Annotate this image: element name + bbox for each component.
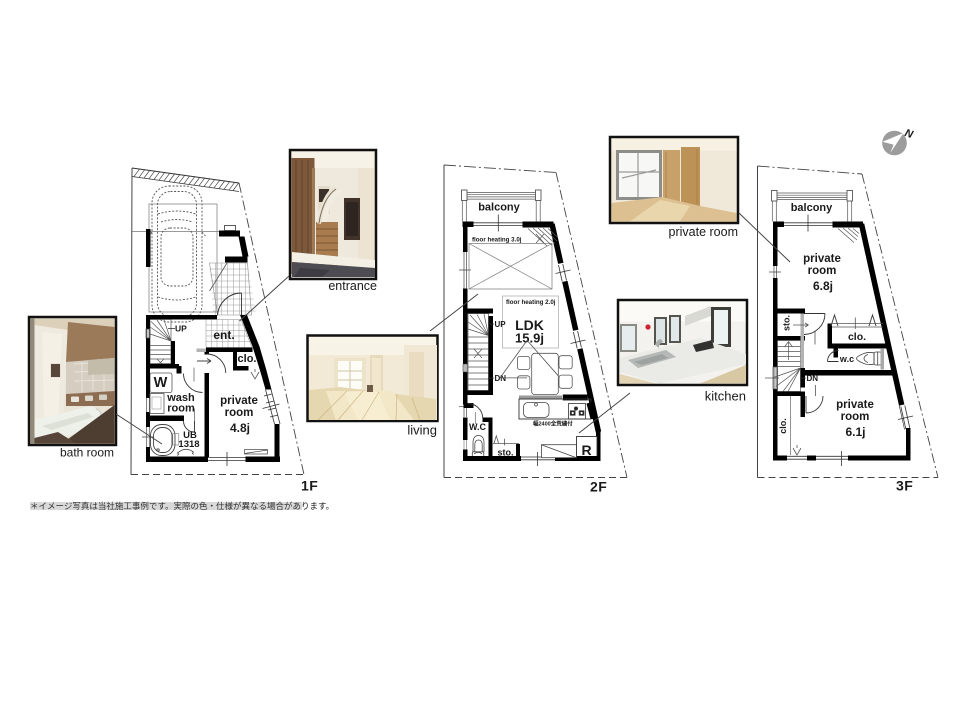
svg-text:clo.: clo. (778, 418, 788, 434)
svg-text:w.c: w.c (839, 354, 854, 364)
svg-text:1318: 1318 (178, 439, 199, 450)
svg-text:kitchen: kitchen (705, 389, 746, 404)
svg-text:floor heating 3.0j: floor heating 3.0j (472, 237, 522, 244)
svg-text:private: private (220, 395, 258, 407)
svg-text:UP: UP (175, 324, 187, 334)
svg-text:private room: private room (669, 225, 738, 239)
svg-text:sto.: sto. (782, 315, 792, 331)
svg-text:DN: DN (495, 374, 507, 383)
svg-text:balcony: balcony (478, 202, 520, 214)
svg-text:4.8j: 4.8j (230, 421, 250, 435)
svg-text:clo.: clo. (238, 353, 257, 365)
svg-text:2F: 2F (590, 479, 607, 495)
svg-text:room: room (225, 407, 254, 419)
svg-text:floor heating 2.0j: floor heating 2.0j (506, 299, 556, 306)
svg-text:UP: UP (495, 320, 507, 329)
svg-text:3F: 3F (896, 478, 913, 494)
svg-text:private: private (803, 253, 841, 265)
svg-text:6.8j: 6.8j (813, 279, 833, 293)
svg-text:room: room (841, 411, 870, 423)
svg-text:living: living (407, 423, 437, 438)
svg-text:6.1j: 6.1j (845, 425, 865, 439)
svg-text:balcony: balcony (791, 202, 833, 214)
svg-text:bath room: bath room (60, 446, 114, 460)
svg-text:W: W (154, 375, 168, 391)
svg-text:room: room (167, 403, 195, 415)
svg-text:private: private (836, 399, 874, 411)
svg-text:clo.: clo. (848, 331, 866, 343)
svg-text:ent.: ent. (213, 328, 234, 342)
svg-text:R: R (581, 442, 591, 458)
svg-text:room: room (808, 265, 837, 277)
svg-text:1F: 1F (301, 478, 318, 494)
svg-text:W.C: W.C (469, 422, 486, 432)
svg-text:幅2400全荒繍付: 幅2400全荒繍付 (533, 420, 573, 428)
svg-text:entrance: entrance (328, 279, 377, 293)
